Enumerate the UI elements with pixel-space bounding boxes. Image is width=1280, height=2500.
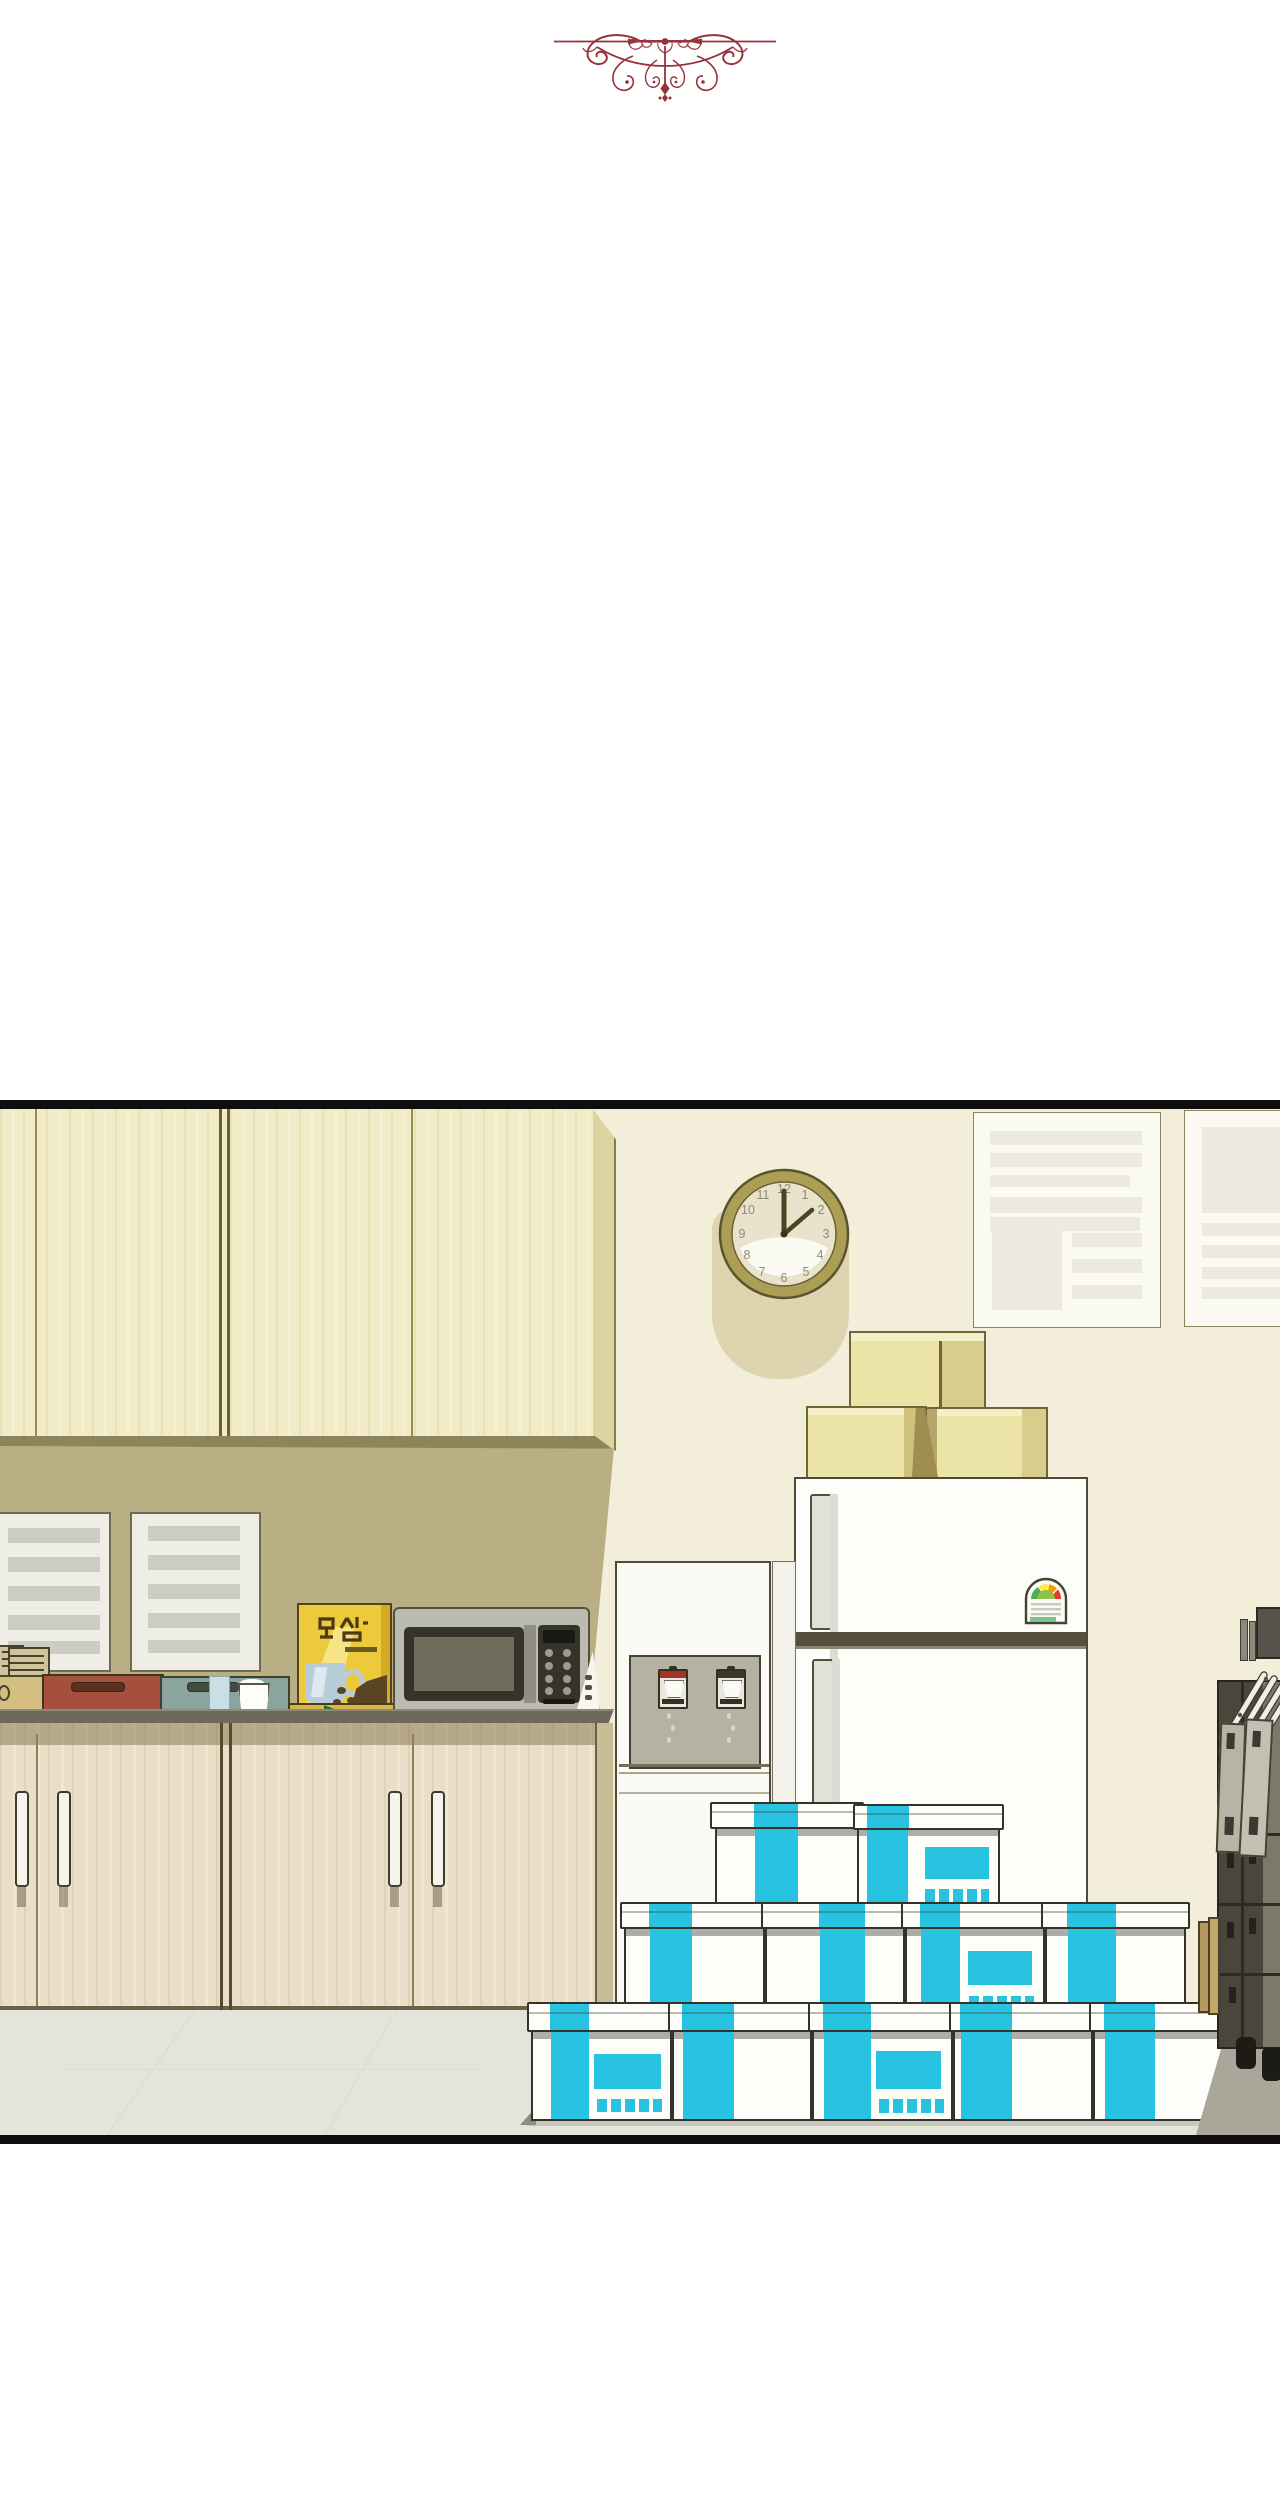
svg-text:3: 3 <box>823 1227 830 1241</box>
svg-text:2: 2 <box>818 1203 825 1217</box>
svg-text:8: 8 <box>744 1248 751 1262</box>
svg-text:6: 6 <box>781 1271 788 1285</box>
svg-text:10: 10 <box>741 1203 755 1217</box>
svg-text:11: 11 <box>757 1188 770 1202</box>
svg-text:1: 1 <box>802 1188 809 1202</box>
svg-text:7: 7 <box>759 1265 766 1279</box>
svg-text:9: 9 <box>739 1227 746 1241</box>
svg-text:4: 4 <box>817 1248 824 1262</box>
svg-text:5: 5 <box>803 1265 810 1279</box>
